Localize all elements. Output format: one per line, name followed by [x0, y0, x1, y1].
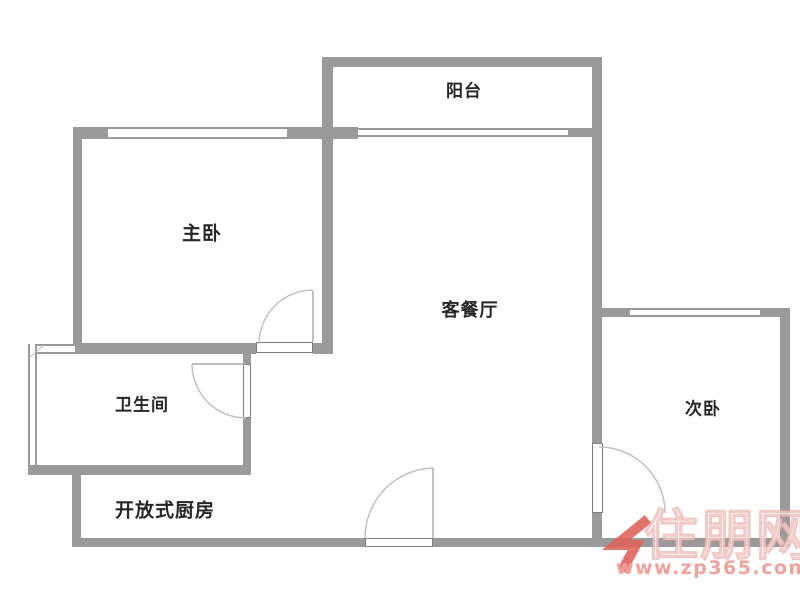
wall-bathroom-bottom	[28, 465, 251, 475]
window-bedroom2-top	[630, 308, 760, 317]
wall-right-upper	[592, 57, 602, 317]
door-frame-second-bedroom	[592, 443, 603, 513]
window-balcony-sill	[358, 128, 568, 137]
room-label-master-bedroom: 主卧	[182, 219, 222, 246]
room-label-open-kitchen: 开放式厨房	[115, 496, 215, 523]
wall-bottom-left	[72, 538, 365, 547]
wall-master-bottom	[75, 343, 256, 354]
window-master-top	[108, 127, 287, 139]
wall-master-right	[322, 57, 333, 353]
room-label-balcony: 阳台	[446, 77, 482, 102]
wall-master-left	[73, 127, 82, 345]
door-frame-master-bedroom	[256, 342, 313, 353]
floorplan-canvas: 阳台 主卧 客餐厅 卫生间 开放式厨房 次卧 住朋网 www.zp365.com	[0, 0, 800, 600]
wall-bathroom-right-upper	[243, 352, 251, 364]
door-arc-entry	[365, 468, 433, 538]
watermark: 住朋网 www.zp365.com	[596, 505, 800, 600]
room-label-second-bedroom: 次卧	[685, 395, 721, 420]
door-frame-entry	[365, 538, 433, 547]
door-arc-master-bedroom	[259, 290, 313, 344]
door-frame-bathroom	[243, 364, 251, 418]
window-bathroom-left	[28, 344, 37, 465]
wall-bedroom2-top-left	[602, 308, 630, 317]
room-label-living-dining: 客餐厅	[442, 296, 499, 322]
watermark-site-name: 住朋网	[644, 509, 800, 563]
wall-bedroom2-left-mid	[592, 317, 602, 443]
door-arc-bathroom	[192, 364, 246, 418]
watermark-site-url: www.zp365.com	[616, 557, 800, 579]
wall-bathroom-right-lower	[243, 418, 251, 465]
wall-kitchen-left	[72, 473, 81, 547]
wall-balcony-top	[322, 57, 602, 67]
room-label-bathroom: 卫生间	[115, 391, 169, 416]
